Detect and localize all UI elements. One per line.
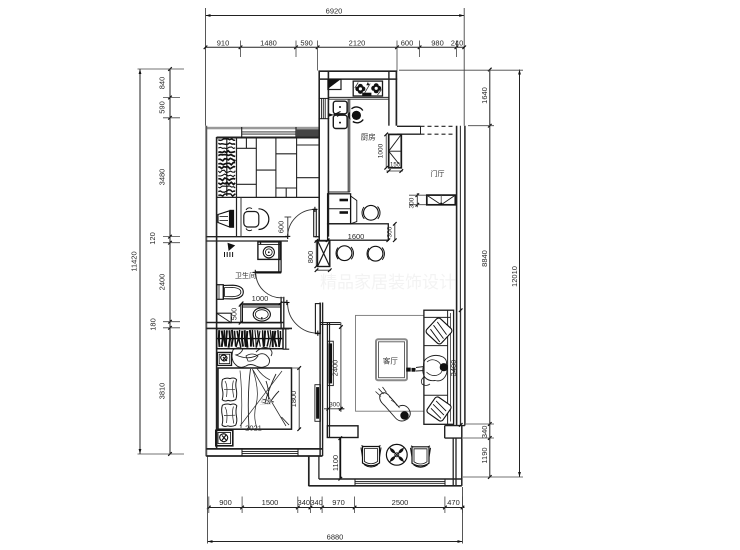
svg-text:970: 970: [332, 498, 345, 507]
svg-text:3400: 3400: [449, 360, 458, 377]
svg-text:1600: 1600: [348, 232, 365, 241]
svg-text:1500: 1500: [262, 498, 279, 507]
svg-text:1640: 1640: [480, 87, 489, 104]
svg-text:600: 600: [401, 38, 414, 47]
svg-text:300: 300: [409, 197, 416, 208]
svg-text:2400: 2400: [158, 274, 167, 291]
svg-text:150: 150: [390, 163, 401, 169]
svg-text:240: 240: [451, 38, 464, 47]
svg-text:340: 340: [480, 426, 489, 439]
svg-text:300: 300: [329, 401, 340, 408]
svg-text:2021: 2021: [245, 424, 262, 433]
svg-text:主卧: 主卧: [260, 397, 274, 406]
svg-text:2400: 2400: [331, 360, 340, 377]
svg-text:12010: 12010: [510, 266, 519, 287]
svg-text:340: 340: [310, 498, 323, 507]
svg-text:3810: 3810: [158, 383, 167, 400]
svg-text:590: 590: [158, 101, 167, 114]
svg-text:1000: 1000: [377, 143, 384, 158]
svg-text:1480: 1480: [260, 38, 277, 47]
svg-text:840: 840: [158, 77, 167, 90]
svg-text:1190: 1190: [480, 447, 489, 463]
svg-text:门厅: 门厅: [431, 169, 445, 178]
svg-text:客厅: 客厅: [383, 356, 398, 366]
svg-text:980: 980: [431, 38, 444, 47]
svg-text:3480: 3480: [158, 169, 167, 186]
svg-text:300: 300: [387, 226, 394, 237]
svg-text:900: 900: [219, 498, 232, 507]
svg-text:1000: 1000: [252, 294, 269, 303]
svg-text:2120: 2120: [349, 38, 366, 47]
svg-text:6920: 6920: [326, 7, 343, 16]
svg-text:6880: 6880: [327, 533, 344, 542]
svg-text:180: 180: [149, 318, 158, 331]
svg-text:120: 120: [148, 232, 157, 245]
svg-text:800: 800: [306, 251, 315, 264]
svg-text:8840: 8840: [480, 250, 489, 267]
svg-text:精品家居装饰设计: 精品家居装饰设计: [320, 273, 456, 292]
svg-text:1100: 1100: [331, 455, 340, 471]
svg-text:470: 470: [447, 498, 460, 507]
svg-text:卫生间: 卫生间: [235, 271, 256, 280]
svg-text:1800: 1800: [289, 391, 298, 408]
svg-text:厨房: 厨房: [361, 132, 376, 142]
svg-text:340: 340: [298, 498, 311, 507]
svg-text:11420: 11420: [130, 251, 139, 271]
svg-text:590: 590: [300, 38, 313, 47]
svg-text:910: 910: [217, 38, 230, 47]
svg-text:2500: 2500: [392, 498, 409, 507]
svg-text:600: 600: [277, 221, 286, 234]
